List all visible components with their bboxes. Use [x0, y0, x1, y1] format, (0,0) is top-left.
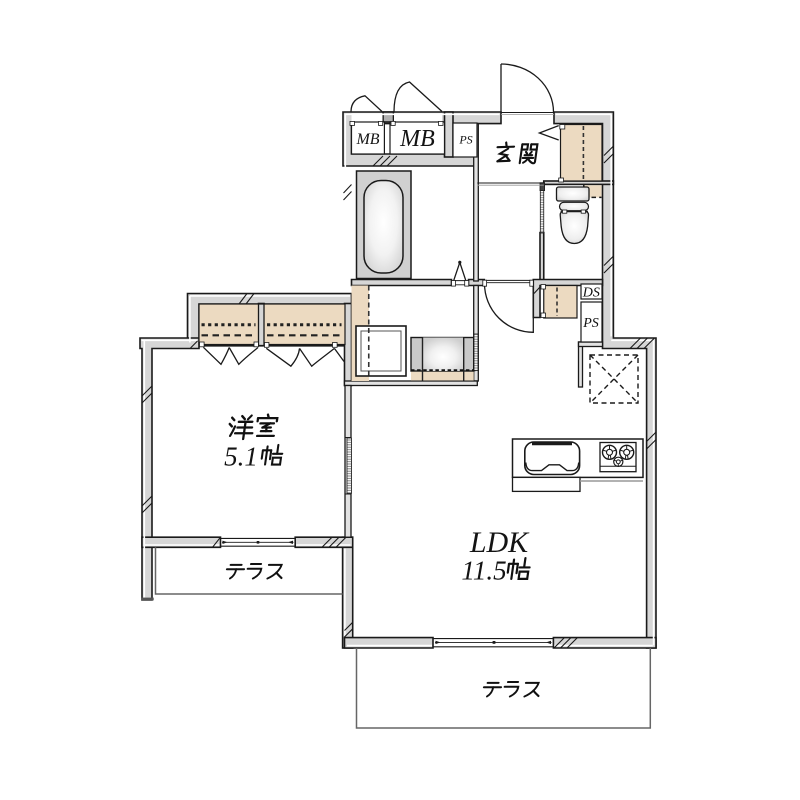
svg-text:5.1: 5.1 — [224, 442, 258, 472]
svg-text:DS: DS — [582, 286, 600, 301]
svg-text:LDK: LDK — [469, 526, 530, 559]
svg-text:PS: PS — [582, 316, 599, 331]
svg-text:MB: MB — [355, 131, 379, 148]
svg-text:MB: MB — [399, 126, 435, 152]
svg-text:11.5: 11.5 — [461, 556, 506, 586]
svg-text:PS: PS — [458, 133, 472, 147]
